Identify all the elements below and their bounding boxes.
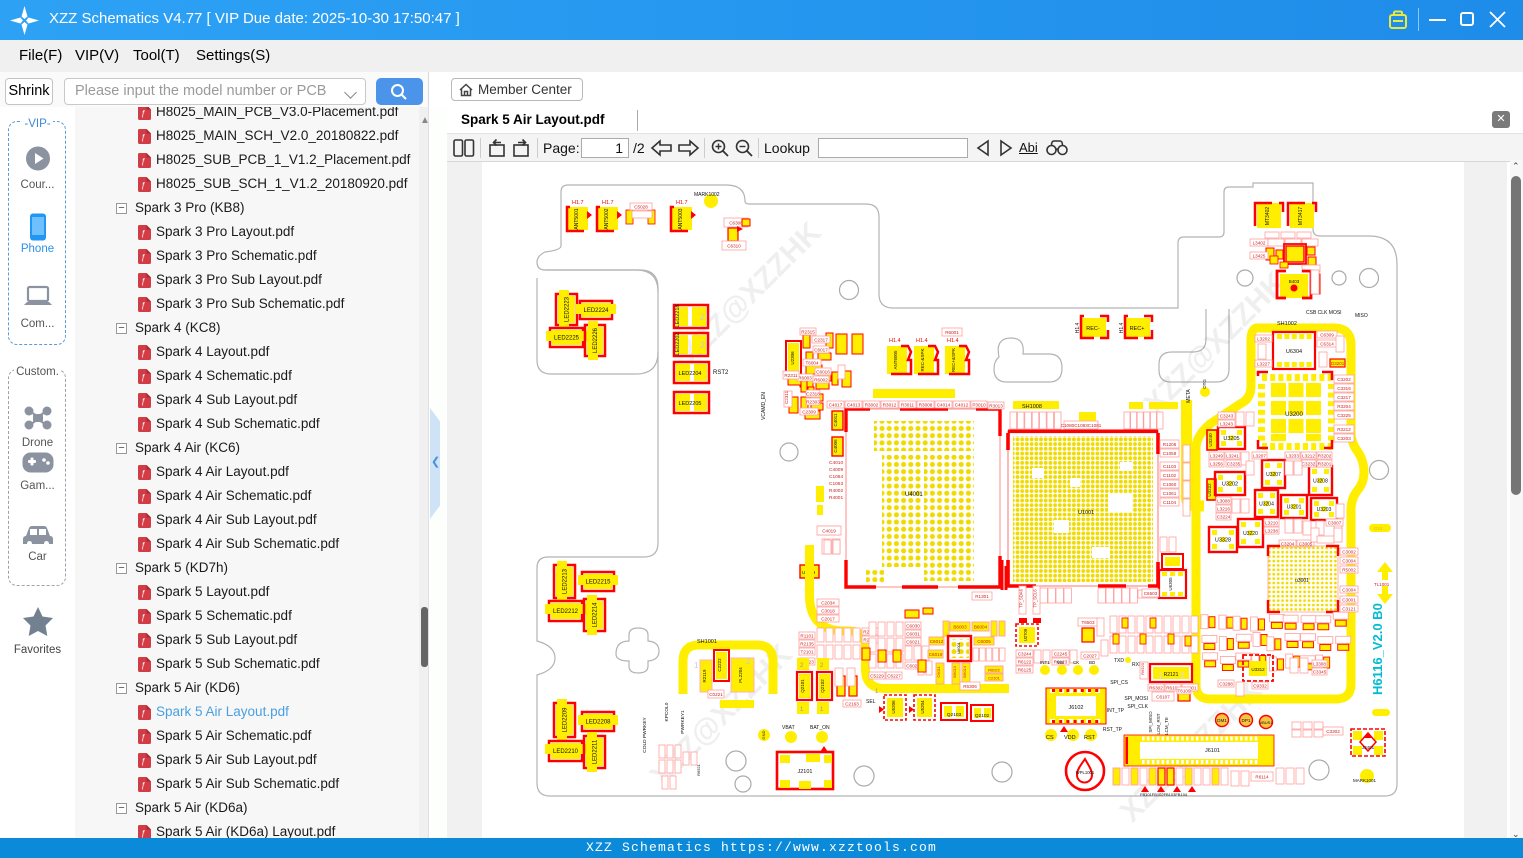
svg-text:B6003: B6003 (953, 624, 967, 629)
svg-text:PL2204: PL2204 (738, 667, 743, 683)
svg-text:C6503: C6503 (1144, 591, 1158, 596)
svg-text:ƒ: ƒ (141, 397, 145, 406)
svg-text:G12: G12 (1374, 526, 1383, 531)
svg-text:C3235: C3235 (1227, 461, 1241, 466)
svg-text:C1080C1083C1081: C1080C1083C1081 (1061, 423, 1102, 428)
svg-text:KPCOL0: KPCOL0 (664, 702, 670, 721)
svg-text:ƒ: ƒ (141, 349, 145, 358)
svg-text:MT3402: MT3402 (1265, 207, 1271, 226)
svg-text:CS: CS (1046, 735, 1054, 741)
svg-text:C6011: C6011 (936, 665, 941, 677)
svg-text:Q2101: Q2101 (800, 679, 805, 693)
svg-text:C3121: C3121 (1342, 606, 1356, 611)
svg-text:J6102: J6102 (1069, 705, 1084, 711)
svg-text:H1.4: H1.4 (889, 338, 901, 344)
svg-text:R2311: R2311 (784, 373, 798, 378)
svg-text:ƒ: ƒ (141, 301, 145, 310)
svg-text:INT_TP: INT_TP (1107, 708, 1125, 714)
svg-text:H1.7: H1.7 (602, 200, 614, 206)
svg-text:C3004: C3004 (1342, 558, 1356, 563)
svg-text:WPL1001: WPL1001 (1076, 770, 1095, 775)
svg-text:C3225: C3225 (1337, 413, 1351, 418)
svg-text:R3202: R3202 (1318, 453, 1332, 458)
svg-text:MARK1002: MARK1002 (694, 192, 720, 198)
svg-text:FB101FB102FB103FB104: FB101FB102FB103FB104 (1140, 792, 1188, 797)
svg-text:C4010: C4010 (829, 460, 843, 466)
svg-text:R2119: R2119 (702, 669, 707, 682)
svg-text:C3243: C3243 (1220, 413, 1234, 418)
svg-text:REC+&SPK: REC+&SPK (951, 348, 956, 372)
svg-text:LED2209: LED2209 (563, 707, 569, 733)
svg-text:R3008: R3008 (919, 402, 933, 407)
svg-text:ANT6005: ANT6005 (893, 350, 898, 370)
svg-text:C6306: C6306 (729, 220, 743, 225)
svg-text:C6310: C6310 (727, 243, 741, 248)
svg-text:ANT5002: ANT5002 (604, 208, 610, 229)
svg-text:C5229: C5229 (870, 673, 884, 678)
svg-text:C4019: C4019 (822, 528, 836, 533)
svg-text:LED2226: LED2226 (593, 327, 599, 353)
svg-text:B6004: B6004 (974, 624, 988, 629)
svg-text:C2311: C2311 (784, 390, 789, 404)
svg-text:MARK1001: MARK1001 (1353, 778, 1377, 783)
svg-text:R2315: R2315 (801, 329, 815, 334)
svg-text:ANT5003: ANT5003 (678, 208, 684, 229)
svg-text:LED2223: LED2223 (565, 296, 571, 322)
svg-text:u3001: u3001 (1295, 578, 1309, 584)
svg-text:CK: CK (1073, 660, 1079, 665)
svg-text:VBUS1: VBUS1 (1259, 720, 1273, 725)
svg-text:U3201: U3201 (1287, 505, 1302, 511)
svg-text:C1061: C1061 (1163, 491, 1177, 496)
svg-text:ƒ: ƒ (141, 613, 145, 622)
svg-text:U3204: U3204 (1259, 502, 1274, 508)
svg-text:C2318: C2318 (806, 391, 820, 396)
svg-text:L3308: L3308 (1313, 661, 1326, 666)
svg-text:RST_TP: RST_TP (1103, 727, 1123, 733)
svg-text:RST2: RST2 (713, 370, 729, 376)
svg-text:C1064: C1064 (829, 474, 843, 480)
svg-text:H1.4: H1.4 (916, 338, 928, 344)
svg-text:U6001: U6001 (956, 641, 961, 654)
svg-text:TXD: TXD (1114, 658, 1124, 664)
svg-text:C3002: C3002 (1342, 549, 1356, 554)
svg-text:C3202: C3202 (1337, 377, 1351, 382)
svg-text:R3002: R3002 (865, 402, 879, 407)
svg-text:ƒ: ƒ (141, 757, 145, 766)
svg-text:ƒ: ƒ (141, 493, 145, 502)
svg-text:VCAMD_EN: VCAMD_EN (761, 392, 767, 420)
svg-text:TL1001: TL1001 (1374, 582, 1390, 587)
svg-text:ƒ: ƒ (141, 109, 145, 118)
svg-text:ƒ: ƒ (141, 829, 145, 838)
svg-text:C6005: C6005 (977, 639, 991, 644)
svg-text:B6014: B6014 (962, 665, 967, 677)
svg-text:ƒ: ƒ (141, 733, 145, 742)
svg-text:U3240: U3240 (1208, 433, 1213, 447)
svg-text:C4011: C4011 (833, 413, 838, 426)
svg-text:L3202: L3202 (1257, 336, 1270, 341)
svg-text:C4013: C4013 (847, 402, 861, 407)
svg-text:C6030: C6030 (906, 623, 920, 628)
svg-text:R3204: R3204 (1337, 404, 1351, 409)
svg-text:SEL: SEL (866, 699, 876, 705)
svg-text:BD: BD (1089, 660, 1096, 665)
svg-text:2: 2 (700, 340, 705, 350)
svg-text:R1101: R1101 (800, 633, 814, 638)
svg-text:U3203: U3203 (1317, 507, 1332, 513)
svg-text:Q2102: Q2102 (975, 713, 990, 719)
svg-text:R2303: R2303 (806, 399, 820, 404)
svg-text:ƒ: ƒ (141, 373, 145, 382)
svg-text:U5206: U5206 (891, 700, 896, 714)
svg-text:R3201: R3201 (1318, 461, 1332, 466)
svg-text:U4001: U4001 (905, 492, 923, 498)
svg-text:R6302: R6302 (1149, 685, 1163, 690)
svg-text:C2309: C2309 (802, 409, 816, 414)
svg-text:SPI_CLK: SPI_CLK (1127, 704, 1148, 710)
svg-text:LED2224: LED2224 (583, 308, 609, 314)
svg-text:VDD: VDD (1064, 735, 1076, 741)
svg-text:ƒ: ƒ (141, 589, 145, 598)
svg-text:C6012: C6012 (930, 639, 944, 644)
svg-text:R6114: R6114 (1255, 774, 1269, 779)
svg-text:W8: W8 (1057, 660, 1064, 665)
svg-text:TP_SCL6: TP_SCL6 (1033, 589, 1038, 608)
svg-text:L3425: L3425 (1253, 253, 1266, 258)
svg-text:INT1: INT1 (1040, 660, 1050, 665)
svg-text:DM1: DM1 (1217, 718, 1227, 723)
svg-text:C2034: C2034 (821, 600, 835, 605)
svg-text:META: META (1186, 389, 1192, 403)
svg-text:ƒ: ƒ (141, 181, 145, 190)
svg-text:R3011: R3011 (901, 402, 915, 407)
svg-text:U6304: U6304 (1286, 349, 1302, 355)
svg-text:SH1008: SH1008 (1022, 404, 1042, 410)
svg-text:REC+: REC+ (1130, 326, 1145, 332)
svg-text:L3210: L3210 (1265, 520, 1278, 525)
svg-text:U3200: U3200 (1285, 412, 1303, 418)
svg-text:L3243: L3243 (1220, 421, 1233, 426)
svg-text:R4001: R4001 (829, 495, 843, 501)
svg-text:R5002: R5002 (1342, 567, 1356, 572)
svg-text:L3216: L3216 (1217, 506, 1230, 511)
svg-text:P3010: P3010 (972, 402, 986, 407)
svg-text:SH1001: SH1001 (697, 639, 717, 645)
svg-text:C2222: C2222 (717, 658, 722, 672)
svg-text:R3212: R3212 (1337, 427, 1351, 432)
svg-text:C6314: C6314 (1320, 341, 1334, 346)
svg-text:1: 1 (1158, 671, 1163, 680)
svg-text:C6017: C6017 (814, 347, 828, 352)
svg-text:C3232: C3232 (1302, 461, 1316, 466)
svg-text:T2101: T2101 (800, 649, 813, 654)
svg-text:L3212: L3212 (1302, 453, 1315, 458)
svg-text:LED2211: LED2211 (593, 739, 599, 764)
svg-text:C3288: C3288 (1219, 681, 1233, 686)
svg-text:C3217: C3217 (1337, 395, 1351, 400)
svg-text:L3402: L3402 (1253, 240, 1266, 245)
svg-text:C2245: C2245 (1054, 651, 1068, 656)
svg-text:MISO: MISO (1355, 313, 1368, 319)
svg-text:LED2210: LED2210 (553, 749, 579, 755)
svg-text:C1103: C1103 (1163, 464, 1177, 469)
svg-text:ƒ: ƒ (141, 781, 145, 790)
svg-text:R6521: R6521 (696, 763, 701, 776)
svg-text:C2017: C2017 (821, 616, 835, 621)
svg-text:2: 2 (700, 312, 705, 322)
svg-text:PWRKEY1: PWRKEY1 (680, 710, 686, 734)
svg-text:2: 2 (746, 657, 751, 666)
svg-text:ƒ: ƒ (141, 661, 145, 670)
svg-text:ƒ: ƒ (141, 157, 145, 166)
svg-text:R1301: R1301 (975, 594, 989, 599)
svg-text:BAT_ON: BAT_ON (810, 725, 830, 731)
svg-text:C2163: C2163 (845, 701, 859, 706)
svg-text:T6004: T6004 (805, 360, 818, 365)
svg-text:H1.4: H1.4 (947, 338, 959, 344)
svg-text:C6107: C6107 (1156, 694, 1170, 699)
svg-text:R6125: R6125 (1018, 667, 1032, 672)
svg-text:C4009: C4009 (829, 467, 843, 473)
svg-text:C4014: C4014 (937, 402, 951, 407)
svg-text:C6227: C6227 (887, 673, 901, 678)
svg-text:C6016: C6016 (816, 369, 830, 374)
svg-text:C1063: C1063 (829, 481, 843, 487)
svg-text:C5028: C5028 (634, 204, 648, 209)
svg-text:L3008: L3008 (1217, 498, 1230, 503)
svg-text:L3233: L3233 (1286, 453, 1299, 458)
svg-text:COLD PWRKEY: COLD PWRKEY (642, 716, 648, 752)
svg-text:CSB CLK MOSI: CSB CLK MOSI (1306, 310, 1342, 316)
svg-text:R6001: R6001 (945, 330, 959, 335)
svg-text:LED2214: LED2214 (593, 602, 599, 628)
svg-text:LCM_TE: LCM_TE (1164, 717, 1169, 735)
svg-text:C4006: C4006 (833, 439, 838, 453)
svg-text:Q2103: Q2103 (947, 712, 962, 718)
svg-text:C1059: C1059 (1163, 451, 1177, 456)
svg-text:C1102: C1102 (1163, 473, 1177, 478)
svg-text:R6002: R6002 (814, 377, 828, 382)
svg-text:VBAT: VBAT (782, 725, 795, 731)
svg-text:C6021: C6021 (906, 639, 920, 644)
svg-text:U3207: U3207 (1266, 472, 1281, 478)
svg-text:U3328: U3328 (1215, 538, 1231, 544)
svg-text:L3249: L3249 (1210, 453, 1223, 458)
svg-text:LED2215: LED2215 (585, 580, 611, 586)
svg-text:C3316: C3316 (1337, 386, 1351, 391)
svg-text:R3013: R3013 (989, 403, 1003, 408)
svg-text:ƒ: ƒ (141, 229, 145, 238)
svg-text:GND: GND (761, 730, 766, 739)
svg-text:C3007: C3007 (1328, 520, 1342, 525)
svg-text:C2317: C2317 (814, 337, 828, 342)
svg-text:C4017: C4017 (829, 402, 843, 407)
svg-text:C6031: C6031 (906, 631, 920, 636)
svg-text:C1104: C1104 (1163, 500, 1177, 505)
svg-text:R3012: R3012 (883, 402, 897, 407)
svg-text:J2101: J2101 (798, 769, 813, 775)
svg-text:SH1002: SH1002 (1277, 321, 1297, 327)
svg-text:LED2213: LED2213 (563, 568, 569, 594)
svg-text:R2121: R2121 (1164, 672, 1179, 678)
svg-text:U3202: U3202 (1222, 482, 1238, 488)
svg-text:SPI_MOSI: SPI_MOSI (1124, 696, 1148, 702)
svg-text:R6320: R6320 (1140, 662, 1145, 675)
svg-text:ƒ: ƒ (141, 277, 145, 286)
svg-text:R6022: R6022 (988, 667, 1001, 672)
svg-text:LED2202: LED2202 (675, 333, 681, 356)
svg-text:U3220: U3220 (1243, 531, 1258, 537)
svg-text:U1001: U1001 (1078, 510, 1094, 516)
svg-text:J3401: J3401 (1362, 745, 1375, 750)
svg-text:TP_SDA6: TP_SDA6 (1019, 588, 1024, 607)
svg-text:C3001: C3001 (1342, 597, 1356, 602)
svg-text:REC-: REC- (1086, 326, 1100, 332)
svg-text:R6003: R6003 (798, 375, 812, 380)
svg-text:C3345: C3345 (1313, 669, 1327, 674)
svg-text:ƒ: ƒ (141, 469, 145, 478)
svg-text:U2709: U2709 (1023, 628, 1028, 641)
svg-text:T6109: T6109 (1177, 688, 1190, 693)
svg-text:RST: RST (1084, 735, 1096, 741)
svg-text:R1206: R1206 (1163, 442, 1177, 447)
svg-text:H1.7: H1.7 (676, 200, 688, 206)
svg-text:ƒ: ƒ (141, 709, 145, 718)
svg-text:LED2204: LED2204 (679, 371, 702, 377)
svg-text:C3302: C3302 (1326, 729, 1340, 734)
svg-text:LED2208: LED2208 (585, 720, 611, 726)
svg-text:R6306: R6306 (963, 684, 977, 689)
svg-text:U2306: U2306 (790, 351, 795, 365)
svg-text:D3201: D3201 (1331, 361, 1345, 366)
svg-text:C3224: C3224 (1217, 514, 1231, 519)
svg-text:C6309: C6309 (1320, 332, 1334, 337)
svg-text:C3244: C3244 (1018, 651, 1032, 656)
svg-text:C3018: C3018 (821, 608, 835, 613)
svg-text:LED2205: LED2205 (679, 401, 702, 407)
svg-text:U3205: U3205 (1223, 436, 1239, 442)
svg-text:C6010: C6010 (929, 652, 943, 657)
svg-text:ƒ: ƒ (141, 253, 145, 262)
svg-text:R6122: R6122 (1018, 659, 1032, 664)
svg-text:U6305: U6305 (1168, 577, 1173, 591)
svg-text:ƒ: ƒ (141, 421, 145, 430)
svg-text:H1.7: H1.7 (572, 200, 584, 206)
svg-text:U3222: U3222 (1207, 483, 1212, 497)
svg-text:1: 1 (694, 661, 699, 670)
svg-text:H6116_V2.0 B0: H6116_V2.0 B0 (1370, 603, 1385, 695)
svg-text:R4002: R4002 (829, 488, 843, 494)
svg-text:L3207: L3207 (1253, 453, 1266, 458)
svg-text:J6101: J6101 (1205, 748, 1220, 754)
svg-text:LCM_RST: LCM_RST (1156, 713, 1161, 734)
svg-text:LED2225: LED2225 (554, 336, 580, 342)
svg-text:SPI_CS: SPI_CS (1110, 680, 1128, 686)
svg-text:L3241: L3241 (1226, 453, 1239, 458)
svg-text:B403: B403 (1289, 279, 1300, 284)
svg-text:T6503: T6503 (1081, 620, 1094, 625)
svg-text:LED2218: LED2218 (675, 305, 681, 328)
svg-text:OTG: OTG (1202, 379, 1207, 389)
svg-text:MT3417: MT3417 (1298, 207, 1304, 226)
svg-text:U3312: U3312 (1251, 667, 1265, 672)
svg-text:Q2102: Q2102 (820, 679, 825, 693)
svg-text:C0221: C0221 (709, 692, 723, 697)
svg-text:C2027: C2027 (1083, 653, 1097, 658)
svg-text:U3208: U3208 (1313, 479, 1328, 485)
svg-text:ƒ: ƒ (141, 637, 145, 646)
svg-text:REC-&SPK: REC-&SPK (920, 348, 925, 371)
svg-text:B6013: B6013 (952, 665, 957, 677)
svg-text:ANT5001: ANT5001 (574, 208, 580, 229)
svg-text:C1060: C1060 (1163, 482, 1177, 487)
svg-text:SPI_MISO: SPI_MISO (1148, 711, 1153, 733)
svg-text:C9332: C9332 (1253, 683, 1267, 688)
svg-text:C2101: C2101 (988, 675, 1001, 680)
svg-text:C4012: C4012 (955, 402, 969, 407)
svg-text:ƒ: ƒ (141, 517, 145, 526)
svg-text:2: 2 (1180, 671, 1185, 680)
svg-text:L3256: L3256 (1210, 461, 1223, 466)
svg-text:LED2212: LED2212 (553, 609, 579, 615)
svg-text:C3203: C3203 (1337, 436, 1351, 441)
svg-text:C3004: C3004 (1342, 587, 1356, 592)
svg-text:ƒ: ƒ (141, 133, 145, 142)
svg-text:U5204: U5204 (920, 700, 925, 714)
svg-text:L3238: L3238 (1265, 528, 1278, 533)
svg-text:R2135: R2135 (800, 641, 814, 646)
svg-text:C3204: C3204 (1281, 541, 1295, 546)
svg-text:L3227: L3227 (1257, 361, 1270, 366)
svg-text:ƒ: ƒ (141, 541, 145, 550)
svg-text:DP1: DP1 (1242, 718, 1251, 723)
